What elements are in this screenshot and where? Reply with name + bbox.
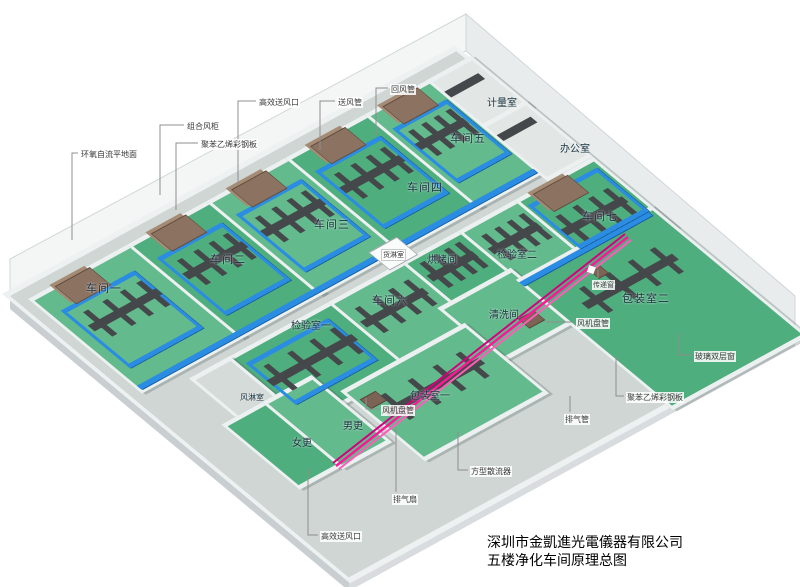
leader-lines	[72, 88, 692, 535]
label-washing: 清洗间	[489, 306, 519, 321]
callout-fan-coil: 风机盘管	[381, 405, 415, 416]
callout-panel: 聚苯乙烯彩钢板	[200, 139, 258, 150]
callout-return-duct: 回风管	[390, 84, 416, 95]
callout-exhaust-fan: 排气扇	[392, 494, 418, 505]
label-ws4: 车间四	[407, 179, 443, 195]
callout-square-diffuser: 方型散流器	[470, 466, 512, 477]
label-office: 办公室	[560, 140, 590, 155]
label-packing1: 包装室一	[410, 387, 450, 402]
label-inspection1: 检验室一	[291, 317, 331, 332]
label-ws3: 车间三	[314, 216, 350, 232]
callout-fan-coil-2: 风机盘管	[576, 318, 610, 329]
callout-epoxy-floor: 环氧自流平地面	[80, 149, 138, 160]
callout-glass-window: 玻璃双层窗	[694, 351, 736, 362]
label-cargo-shower: 货淋室	[381, 249, 406, 261]
label-metering: 计量室	[487, 94, 517, 109]
company-name: 深圳市金凱進光電儀器有限公司	[487, 535, 683, 553]
drawing-canvas: 车间一 车间二 车间三 车间四 车间五 车间六 车间七 计量室 办公室 货淋室 …	[0, 0, 800, 587]
label-ws6: 车间六	[372, 292, 408, 308]
label-baking: 烘烤间	[427, 251, 457, 266]
label-inspection2: 检验室二	[497, 246, 537, 261]
callout-exhaust-pipe: 排气管	[564, 414, 590, 425]
exhaust-pink-pipes	[333, 234, 631, 469]
label-packing2: 包装室二	[622, 290, 670, 306]
callout-hepa-outlet-bottom: 高效送风口	[320, 531, 362, 542]
callout-transfer-window: 传递窗	[592, 280, 615, 290]
callout-supply-duct: 送风管	[337, 97, 363, 108]
callout-ahu: 组合风柜	[186, 121, 220, 132]
title-block: 深圳市金凱進光電儀器有限公司 五楼净化车间原理总图	[487, 535, 683, 571]
callout-panel-right: 聚苯乙烯彩钢板	[626, 392, 684, 403]
label-ws2: 车间二	[210, 251, 246, 267]
callout-hepa-outlet: 高效送风口	[258, 97, 300, 108]
label-ws7: 车间七	[582, 208, 618, 224]
drawing-title: 五楼净化车间原理总图	[487, 553, 683, 571]
label-air-shower: 风淋室	[240, 392, 264, 403]
label-ws1: 车间一	[86, 280, 122, 296]
label-ws5: 车间五	[450, 130, 486, 146]
label-female-change: 女更	[292, 434, 312, 449]
label-male-change: 男更	[343, 417, 363, 432]
